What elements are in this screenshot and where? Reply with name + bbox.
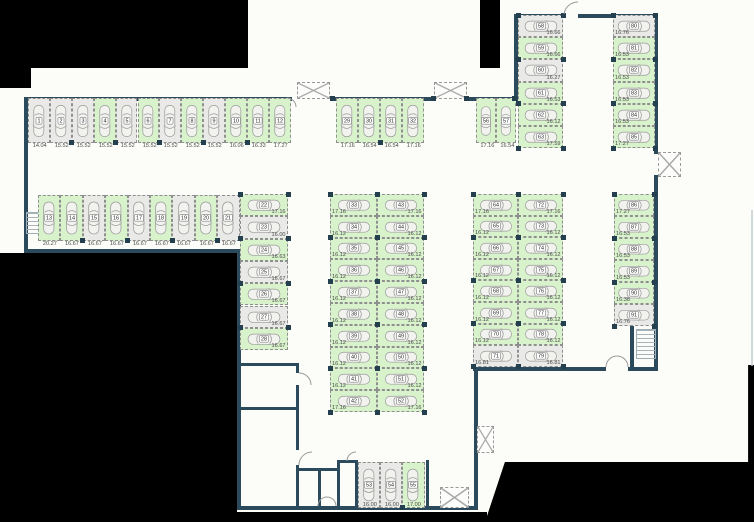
parking-stall-56[interactable]: 5617.16 [476,98,496,143]
parking-stall-74[interactable]: 7416.12 [518,237,563,259]
stall-number-badge: 10 [231,117,241,124]
parking-stall-29[interactable]: 2917.16 [336,98,358,143]
structural-column [422,410,427,415]
stall-number-badge: 25 [259,268,269,275]
stall-size-label: 16.67 [272,275,286,281]
structural-column [611,57,616,62]
stall-size-label: 16.76 [615,29,629,35]
structural-column [652,192,657,197]
stall-size-label: 17.27 [274,142,286,148]
structural-column [422,322,427,327]
parking-stall-61[interactable]: 6116.53 [518,82,563,104]
stall-number-badge: 53 [364,481,374,488]
parking-stall-23: 2316.00 [240,216,288,238]
parking-stall-16[interactable]: 1616.67 [105,195,127,241]
stall-size-label: 16.12 [332,229,346,235]
stall-number-badge: 69 [491,309,501,316]
structural-column [561,146,566,151]
structural-column [561,235,566,240]
stall-size-label: 16.12 [408,295,422,301]
structural-column [400,505,405,510]
stall-number-badge: 68 [491,287,501,294]
stall-size-label: 15.52 [120,142,132,148]
structural-column [471,321,476,326]
stall-number-badge: 21 [224,214,234,221]
stall-number-badge: 64 [491,201,501,208]
structural-column [238,325,243,330]
structural-column [516,57,521,62]
stall-number-badge: 44 [396,223,406,230]
stall-number-badge: 81 [629,45,639,52]
stall-number-badge: 89 [629,267,639,274]
stall-size-label: 15.52 [55,142,67,148]
stall-number-badge: 23 [259,224,269,231]
stall-number-badge: 28 [259,335,269,342]
structural-column [69,140,74,145]
stall-number-badge: 47 [396,288,406,295]
stall-number-badge: 4 [101,117,108,124]
stall-size-label: 15.52 [77,142,89,148]
structural-column [612,280,617,285]
stall-size-label: 15.52 [142,142,154,148]
outside-area [480,0,500,68]
parking-stall-19: 1916.67 [172,195,194,241]
parking-stall-13[interactable]: 1320.27 [38,195,60,241]
stall-size-label: 16.38 [616,296,630,302]
parking-stall-59[interactable]: 5916.66 [518,37,563,59]
parking-stall-41[interactable]: 4116.12 [330,368,377,390]
structural-column [611,101,616,106]
parking-stall-84[interactable]: 8416.53 [613,104,655,126]
structural-column [328,192,333,197]
stall-number-badge: 6 [145,117,152,124]
wall-segment [24,249,241,253]
structural-column [516,364,521,369]
stall-size-label: 16.12 [475,272,489,278]
parking-stall-2: 215.52 [50,98,72,143]
parking-plan-page: { "colors": { "available_fill": "#d8f3cb… [0,0,754,522]
parking-stall-36[interactable]: 3616.12 [330,259,377,281]
stall-size-label: 17.00 [407,501,420,507]
stall-number-badge: 40 [349,354,359,361]
parking-stall-31[interactable]: 3116.54 [380,98,402,143]
parking-stall-49[interactable]: 4916.12 [377,325,424,347]
parking-stall-15: 1516.67 [83,195,105,241]
stall-size-label: 16.63 [272,253,286,259]
parking-floor-plan: 114.04215.52315.52415.52515.52615.52715.… [0,0,754,522]
stall-size-label: 17.16 [408,404,422,410]
parking-stall-64[interactable]: 6417.16 [473,194,518,216]
stall-size-label: 17.16 [272,208,286,214]
stall-number-badge: 35 [349,245,359,252]
stall-size-label: 14.04 [33,142,45,148]
parking-stall-86[interactable]: 8617.27 [614,194,654,216]
structural-column [375,410,380,415]
parking-stall-40[interactable]: 4016.12 [330,347,377,369]
stall-number-badge: 37 [349,288,359,295]
stall-size-label: 16.53 [616,252,630,258]
stall-size-label: 15.52 [98,142,110,148]
parking-stall-12[interactable]: 1217.27 [269,98,291,143]
parking-stall-66[interactable]: 6616.12 [473,237,518,259]
stall-number-badge: 30 [364,117,374,124]
parking-stall-24[interactable]: 2416.63 [240,239,288,261]
structural-column [561,101,566,106]
parking-stall-20[interactable]: 2016.67 [195,195,217,241]
stall-number-badge: 13 [44,214,54,221]
stall-size-label: 16.53 [615,73,629,79]
parking-stall-44[interactable]: 4416.12 [377,216,424,238]
structural-column [561,321,566,326]
parking-stall-18[interactable]: 1816.67 [150,195,172,241]
stall-number-badge: 8 [189,117,196,124]
structural-column [80,238,85,243]
stall-number-badge: 48 [396,310,406,317]
structural-column [157,140,162,145]
structural-column [238,236,243,241]
parking-stall-38[interactable]: 3816.12 [330,303,377,325]
parking-stall-81[interactable]: 8116.53 [613,37,655,59]
stall-number-badge: 20 [201,214,211,221]
stall-number-badge: 84 [629,111,639,118]
outside-area [0,0,248,68]
parking-stall-14[interactable]: 1416.67 [60,195,82,241]
parking-stall-34[interactable]: 3416.12 [330,216,377,238]
wall-segment [628,367,658,371]
outside-area [0,68,31,88]
structural-column [375,366,380,371]
structural-column [561,192,566,197]
stall-size-label: 16.12 [408,251,422,257]
parking-stall-45[interactable]: 4516.12 [377,238,424,260]
elevator-shaft [658,152,681,177]
parking-stall-22[interactable]: 2217.16 [240,194,288,216]
stall-number-badge: 78 [536,331,546,338]
stall-size-label: 17.16 [480,142,491,148]
stall-number-badge: 67 [491,266,501,273]
parking-stall-26[interactable]: 2616.67 [240,283,288,305]
parking-stall-27: 2716.67 [240,306,288,328]
parking-stall-90[interactable]: 9016.38 [614,282,654,304]
parking-stall-11[interactable]: 1116.33 [247,98,269,143]
stall-number-badge: 43 [396,201,406,208]
stall-number-badge: 22 [259,201,269,208]
parking-stall-78[interactable]: 7816.12 [518,324,563,346]
parking-stall-43[interactable]: 4317.16 [377,194,424,216]
stall-number-badge: 7 [167,117,174,124]
elevator-shaft [440,487,469,508]
stall-size-label: 16.12 [547,272,561,278]
wall-segment [240,363,298,366]
parking-stall-39[interactable]: 3916.12 [330,325,377,347]
structural-column [471,192,476,197]
parking-stall-37[interactable]: 3716.12 [330,281,377,303]
parking-stall-91: 9116.76 [614,304,654,326]
structural-column [653,13,658,18]
stall-size-label: 16.12 [332,251,346,257]
stall-size-label: 17.16 [475,207,489,213]
stall-size-label: 16.12 [547,229,561,235]
outside-area [0,253,237,522]
parking-stall-88[interactable]: 8816.53 [614,238,654,260]
parking-stall-52[interactable]: 5217.16 [377,390,424,412]
stall-number-badge: 12 [275,117,285,124]
parking-stall-63[interactable]: 6317.59 [518,126,563,148]
parking-stall-85[interactable]: 8517.27 [613,126,655,148]
structural-column [516,321,521,326]
parking-stall-6[interactable]: 615.52 [138,98,160,143]
stall-size-label: 17.16 [408,208,422,214]
stall-size-label: 15.52 [164,142,176,148]
door-arc [617,356,628,367]
parking-stall-73[interactable]: 7316.12 [518,216,563,238]
parking-stall-33[interactable]: 3317.16 [330,194,377,216]
structural-column [471,235,476,240]
door-arc [327,497,336,506]
stall-size-label: 17.16 [332,404,346,410]
stall-size-label: 15.52 [186,142,198,148]
parking-stall-89[interactable]: 8916.53 [614,260,654,282]
structural-column [375,192,380,197]
door-arc [299,452,312,465]
structural-column [611,13,616,18]
stall-size-label: 16.66 [547,51,561,57]
structural-column [431,96,436,101]
structural-column [516,101,521,106]
structural-column [561,364,566,369]
stall-size-label: 16.12 [332,382,346,388]
structural-column [653,146,658,151]
stall-number-badge: 24 [259,246,269,253]
stall-size-label: 16.12 [408,338,422,344]
parking-stall-70[interactable]: 7016.12 [473,324,518,346]
stall-number-badge: 9 [211,117,218,124]
stall-size-label: 16.12 [408,360,422,366]
structural-column [652,280,657,285]
wall-segment [318,470,321,508]
stall-number-badge: 1 [36,117,43,124]
stall-number-badge: 31 [386,117,396,124]
structural-column [238,192,243,197]
door-arc [564,2,578,14]
x-cross-icon [435,83,466,98]
parking-stall-77[interactable]: 7716.12 [518,302,563,324]
parking-stall-82[interactable]: 8216.53 [613,59,655,81]
parking-stall-5: 515.52 [116,98,138,143]
stall-number-badge: 62 [536,111,546,118]
stall-number-badge: 79 [536,352,546,359]
stall-number-badge: 56 [481,117,491,124]
parking-stall-10[interactable]: 1016.06 [225,98,247,143]
parking-stall-48[interactable]: 4816.12 [377,303,424,325]
parking-stall-72[interactable]: 7217.16 [518,194,563,216]
stall-size-label: 20.27 [43,240,56,246]
stall-number-badge: 77 [536,309,546,316]
stall-number-badge: 36 [349,267,359,274]
x-cross-icon [478,427,493,452]
stall-size-label: 16.54 [500,142,511,148]
stall-number-badge: 71 [491,352,501,359]
parking-stall-71: 7116.81 [473,345,518,367]
stall-size-label: 16.53 [615,51,629,57]
stall-size-label: 16.12 [475,294,489,300]
stall-number-badge: 54 [386,481,396,488]
wall-segment [296,465,299,508]
parking-stall-53: 5316.00 [358,462,380,508]
parking-stall-55[interactable]: 5517.00 [402,462,424,508]
stall-size-label: 16.67 [200,240,213,246]
stall-size-label: 16.12 [332,360,346,366]
stall-size-label: 17.59 [547,140,561,146]
parking-stall-83[interactable]: 8316.53 [613,82,655,104]
stall-size-label: 16.67 [222,240,235,246]
x-cross-icon [298,83,329,98]
structural-column [375,322,380,327]
structural-column [170,238,175,243]
parking-stall-7: 715.52 [159,98,181,143]
structural-column [652,324,657,329]
structural-column [215,238,220,243]
parking-stall-51[interactable]: 5116.12 [377,368,424,390]
stall-number-badge: 3 [79,117,86,124]
structural-column [516,13,521,18]
structural-column [516,146,521,151]
stall-size-label: 16.53 [615,118,629,124]
stall-size-label: 16.12 [547,118,561,124]
stall-size-label: 16.33 [252,142,264,148]
stall-number-badge: 32 [408,117,418,124]
stall-size-label: 16.12 [547,337,561,343]
x-cross-icon [659,153,680,176]
stall-number-badge: 2 [58,117,65,124]
stall-number-badge: 86 [629,201,639,208]
parking-stall-60: 6016.27 [518,59,563,81]
outside-area [485,365,754,522]
parking-stall-67[interactable]: 6716.12 [473,259,518,281]
structural-column [286,325,291,330]
parking-stall-3: 315.52 [72,98,94,143]
structural-column [238,281,243,286]
stall-size-label: 16.67 [132,240,145,246]
parking-stall-57[interactable]: 5716.54 [496,98,516,143]
wall-segment [296,363,299,373]
stall-size-label: 16.81 [547,359,561,365]
stall-size-label: 16.12 [547,251,561,257]
stall-size-label: 16.12 [408,382,422,388]
stall-number-badge: 65 [491,223,501,230]
stall-number-badge: 90 [629,289,639,296]
stall-number-badge: 88 [629,245,639,252]
structural-column [516,278,521,283]
parking-stall-9: 915.52 [203,98,225,143]
parking-stall-30[interactable]: 3016.54 [358,98,380,143]
structural-column [113,140,118,145]
parking-stall-75[interactable]: 7516.12 [518,259,563,281]
stall-number-badge: 45 [396,245,406,252]
parking-stall-47[interactable]: 4716.12 [377,281,424,303]
parking-stall-69[interactable]: 6916.12 [473,302,518,324]
stall-size-label: 16.12 [332,295,346,301]
parking-stall-50[interactable]: 5016.12 [377,347,424,369]
parking-stall-76[interactable]: 7616.12 [518,280,563,302]
parking-stall-35[interactable]: 3516.12 [330,238,377,260]
parking-stall-79: 7916.81 [518,345,563,367]
stairs-icon [636,329,656,359]
parking-stall-32[interactable]: 3217.16 [402,98,424,143]
stall-size-label: 16.54 [363,142,375,148]
parking-stall-42[interactable]: 4217.16 [330,390,377,412]
stall-size-label: 16.67 [65,240,78,246]
wall-segment [426,460,429,508]
stall-size-label: 17.27 [616,208,630,214]
stall-number-badge: 73 [536,223,546,230]
stall-number-badge: 42 [349,397,359,404]
stall-number-badge: 75 [536,266,546,273]
stall-size-label: 16.53 [547,96,561,102]
structural-column [464,96,469,101]
stall-number-badge: 70 [491,331,501,338]
stall-number-badge: 60 [536,67,546,74]
elevator-shaft [434,82,467,99]
stall-number-badge: 18 [156,214,166,221]
elevator-shaft [297,82,330,99]
stall-size-label: 16.67 [88,240,101,246]
parking-stall-46[interactable]: 4616.12 [377,259,424,281]
structural-column [330,96,335,101]
stall-size-label: 16.27 [547,73,561,79]
stall-size-label: 16.12 [408,317,422,323]
stall-size-label: 16.54 [385,142,397,148]
parking-stall-87[interactable]: 8716.53 [614,216,654,238]
parking-stall-65[interactable]: 6516.12 [473,216,518,238]
parking-stall-58: 5816.66 [518,15,563,37]
structural-column [125,238,130,243]
structural-column [612,192,617,197]
stall-size-label: 16.67 [272,320,286,326]
stall-number-badge: 39 [349,332,359,339]
parking-stall-68[interactable]: 6816.12 [473,280,518,302]
structural-column [422,235,427,240]
structural-column [516,235,521,240]
structural-column [471,364,476,369]
stall-number-badge: 83 [629,89,639,96]
parking-stall-8[interactable]: 815.52 [181,98,203,143]
parking-stall-17: 1716.67 [128,195,150,241]
stall-size-label: 17.16 [547,207,561,213]
stall-number-badge: 61 [536,89,546,96]
stall-number-badge: 57 [501,117,511,124]
parking-stall-4[interactable]: 415.52 [94,98,116,143]
stall-size-label: 16.67 [272,342,286,348]
structural-column [328,366,333,371]
stall-size-label: 16.12 [475,251,489,257]
stall-size-label: 16.67 [155,240,168,246]
stall-number-badge: 59 [536,45,546,52]
stall-size-label: 17.16 [341,142,353,148]
stall-number-badge: 5 [123,117,130,124]
structural-column [328,322,333,327]
parking-stall-28[interactable]: 2816.67 [240,328,288,350]
stall-number-badge: 50 [396,354,406,361]
structural-column [516,192,521,197]
parking-stall-62[interactable]: 6216.12 [518,104,563,126]
structural-column [612,236,617,241]
structural-column [328,279,333,284]
structural-column [286,281,291,286]
stall-number-badge: 41 [349,376,359,383]
stall-number-badge: 63 [536,133,546,140]
door-arc [606,356,617,367]
